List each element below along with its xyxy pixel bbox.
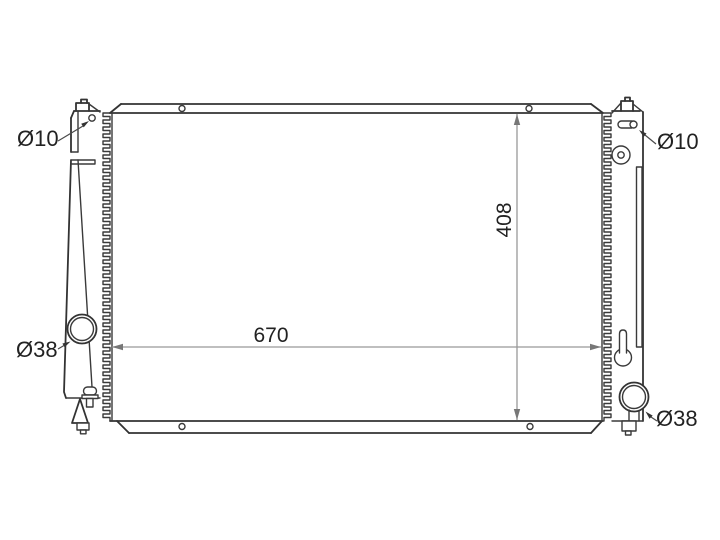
d38-left-arrow bbox=[62, 342, 70, 348]
bottom-mounting-plate bbox=[110, 421, 603, 433]
right-slot-hole-end bbox=[630, 121, 637, 128]
callout-d38-left: Ø38 bbox=[16, 337, 71, 362]
dim-670-arrow-right bbox=[590, 344, 601, 350]
d10-right-leader bbox=[645, 135, 656, 144]
dimension-core-width: 670 bbox=[112, 324, 601, 350]
dimension-core-height: 408 bbox=[493, 114, 520, 420]
dim-408-arrow-top bbox=[514, 114, 520, 125]
top-plate-hole-right bbox=[526, 106, 532, 112]
right-pipe-outer-38mm bbox=[620, 383, 649, 412]
top-plate-right-chamfer bbox=[591, 104, 603, 113]
right-tank bbox=[612, 98, 649, 436]
dim-670-arrow-left bbox=[112, 344, 123, 350]
left-tank-top-corner bbox=[71, 111, 74, 118]
left-pipe-outer-38mm bbox=[68, 315, 97, 344]
left-tank bbox=[64, 100, 100, 434]
right-ring-boss-outer bbox=[612, 146, 630, 164]
d38-left-label: Ø38 bbox=[16, 337, 58, 362]
d38-right-label: Ø38 bbox=[656, 406, 698, 431]
left-tank-top-tab bbox=[76, 103, 89, 111]
left-mount-hole-10mm bbox=[89, 115, 95, 121]
left-tank-diagonal-line bbox=[78, 160, 92, 387]
right-bottom-pin bbox=[626, 431, 632, 435]
right-tank-top-tab bbox=[621, 101, 633, 111]
left-bottom-bracket bbox=[72, 399, 88, 423]
drain-plug bbox=[82, 387, 98, 407]
top-plate-left-chamfer bbox=[110, 104, 121, 113]
right-bottom-tab bbox=[622, 421, 636, 431]
bottom-plate-left-chamfer bbox=[117, 421, 129, 433]
right-locating-pin-stem bbox=[620, 330, 627, 353]
top-mounting-plate bbox=[110, 104, 603, 113]
radiator-core bbox=[103, 113, 611, 421]
drain-plug-cap bbox=[84, 387, 97, 395]
d10-right-label: Ø10 bbox=[657, 129, 699, 154]
radiator-diagram: 670 408 Ø10 Ø10 Ø38 Ø38 bbox=[0, 0, 720, 540]
d10-left-label: Ø10 bbox=[17, 126, 59, 151]
dim-670-value: 670 bbox=[253, 324, 288, 347]
bottom-plate-hole-left bbox=[179, 424, 185, 430]
left-tank-outer-wall bbox=[64, 160, 71, 398]
dim-408-arrow-bottom bbox=[514, 409, 520, 420]
callout-d10-right: Ø10 bbox=[639, 129, 699, 154]
dim-408-value: 408 bbox=[493, 202, 516, 237]
drain-plug-stem bbox=[87, 399, 94, 408]
bottom-plate-right-chamfer bbox=[591, 421, 602, 433]
left-bottom-pin bbox=[81, 430, 87, 434]
left-crimp-serration bbox=[103, 113, 110, 421]
left-tank-ledge bbox=[72, 160, 95, 164]
bottom-plate-hole-right bbox=[527, 424, 533, 430]
callout-d38-right: Ø38 bbox=[646, 406, 698, 431]
left-bottom-foot bbox=[77, 423, 89, 430]
right-tank-rib-slot bbox=[637, 167, 643, 347]
right-crimp-serration bbox=[604, 113, 611, 421]
radiator-drawing-svg: 670 408 Ø10 Ø10 Ø38 Ø38 bbox=[0, 0, 720, 540]
top-plate-hole-left bbox=[179, 106, 185, 112]
d38-left-leader bbox=[58, 346, 64, 350]
